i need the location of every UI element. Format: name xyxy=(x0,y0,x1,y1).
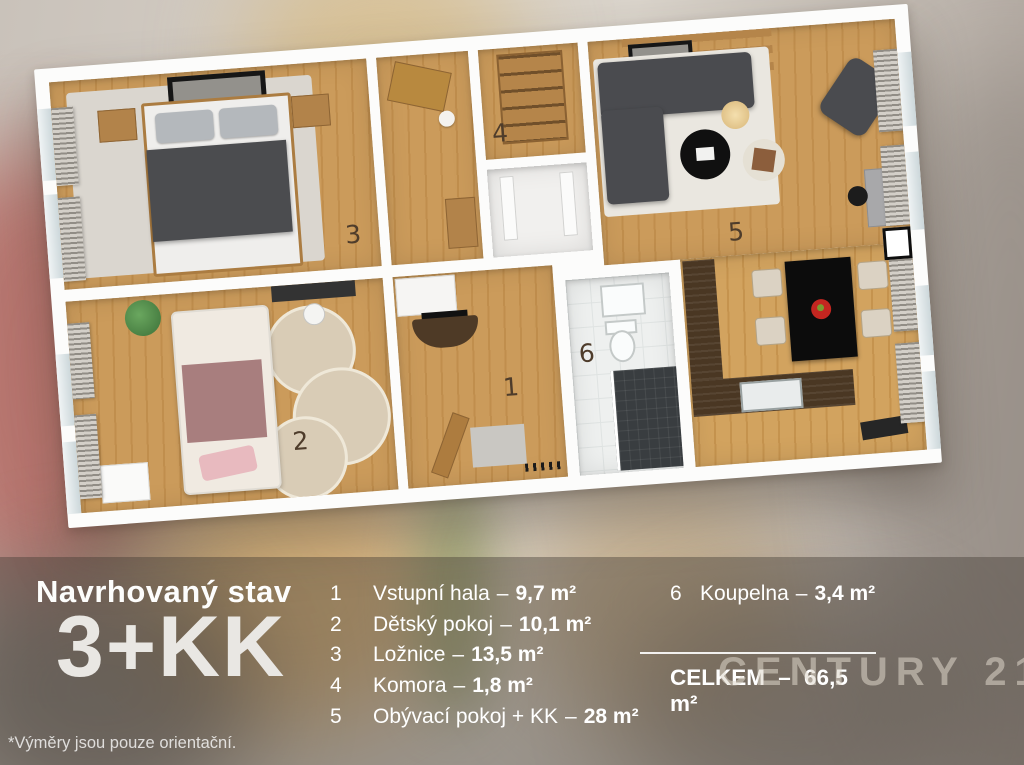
sofa-chaise xyxy=(601,106,670,204)
legend-row: 1 Vstupní hala – 9,7 m² xyxy=(330,579,639,610)
legend-name: Vstupní hala xyxy=(373,582,490,606)
kitchen-area xyxy=(680,242,927,467)
shower xyxy=(610,366,683,471)
window-blinds xyxy=(889,258,918,332)
dining-chair xyxy=(751,268,783,298)
legend-dash: – xyxy=(497,582,509,606)
pillow xyxy=(155,109,215,143)
room-label-4: 4 xyxy=(491,118,509,148)
bathroom-sink xyxy=(600,282,646,317)
century21-watermark-logo: CENTURY 21. xyxy=(718,650,1024,695)
blanket xyxy=(182,359,268,443)
room-loznice: 3 xyxy=(49,59,382,290)
room-label-2: 2 xyxy=(292,426,310,456)
corridor xyxy=(376,51,483,265)
entry-mat xyxy=(470,424,527,468)
legend-area: 3,4 m² xyxy=(814,582,875,606)
legend-dash: – xyxy=(500,613,512,637)
floor-plan-3d: 3 4 xyxy=(34,4,942,528)
legend-dash: – xyxy=(565,705,577,729)
unit-type-label: 3+KK xyxy=(56,604,286,690)
legend-area: 10,1 m² xyxy=(519,613,591,637)
pillow xyxy=(218,104,278,138)
dresser xyxy=(445,197,479,249)
room-label-1: 1 xyxy=(502,372,520,402)
desk-chair xyxy=(847,185,868,206)
wall-picture xyxy=(882,226,912,260)
legend-area: 9,7 m² xyxy=(515,582,576,606)
single-bed xyxy=(171,305,283,496)
legend-dash: – xyxy=(454,674,466,698)
entry-doormat xyxy=(387,61,452,112)
room-vstupni-hala: 1 xyxy=(393,265,568,488)
legend-num: 1 xyxy=(330,582,373,606)
dining-chair xyxy=(755,316,787,346)
legend-area: 28 m² xyxy=(584,705,639,729)
room-label-5: 5 xyxy=(727,217,745,247)
kitchen-sink xyxy=(739,378,803,413)
legend-num: 3 xyxy=(330,643,373,667)
disclaimer-footnote: *Výměry jsou pouze orientační. xyxy=(8,734,236,753)
legend-name: Koupelna xyxy=(700,582,789,606)
door xyxy=(499,176,518,241)
dining-chair xyxy=(857,260,889,290)
legend-row: 6 Koupelna – 3,4 m² xyxy=(640,579,880,610)
nightstand xyxy=(97,108,137,143)
pouf-tray xyxy=(751,148,776,173)
legend-num: 2 xyxy=(330,613,373,637)
door xyxy=(559,171,578,236)
room-koupelna: 6 xyxy=(565,272,683,475)
magazine xyxy=(696,147,715,161)
console-table xyxy=(412,315,480,350)
nightstand xyxy=(291,93,331,128)
legend-row: 3 Ložnice – 13,5 m² xyxy=(330,640,639,671)
pillow xyxy=(198,444,258,481)
legend-num: 4 xyxy=(330,674,373,698)
legend-row: 4 Komora – 1,8 m² xyxy=(330,671,639,702)
real-estate-floorplan-image: 3 4 xyxy=(0,0,1024,765)
room-komora: 4 xyxy=(478,43,586,160)
room-legend-left: 1 Vstupní hala – 9,7 m² 2 Dětský pokoj –… xyxy=(330,579,639,732)
legend-num: 5 xyxy=(330,705,373,729)
plant xyxy=(124,299,163,338)
legend-area: 13,5 m² xyxy=(471,643,543,667)
vestibule xyxy=(487,162,593,257)
room-label-6: 6 xyxy=(578,338,596,368)
legend-name: Komora xyxy=(373,674,447,698)
room-label-3: 3 xyxy=(344,219,362,249)
legend-name: Dětský pokoj xyxy=(373,613,493,637)
legend-row: 2 Dětský pokoj – 10,1 m² xyxy=(330,610,639,641)
coat-hooks xyxy=(525,461,563,472)
toilet xyxy=(608,329,636,363)
vase xyxy=(438,110,455,127)
legend-num: 6 xyxy=(670,582,700,606)
legend-dash: – xyxy=(796,582,808,606)
window-blinds xyxy=(67,322,95,399)
side-table xyxy=(100,462,151,503)
kids-desk xyxy=(271,280,356,302)
legend-area: 1,8 m² xyxy=(472,674,533,698)
room-detsky-pokoj: 2 xyxy=(65,278,398,513)
room-obyvaci-pokoj: 5 xyxy=(587,19,911,265)
legend-dash: – xyxy=(452,643,464,667)
legend-name: Obývací pokoj + KK xyxy=(373,705,558,729)
legend-name: Ložnice xyxy=(373,643,445,667)
double-bed xyxy=(141,92,304,277)
room-legend-right: 6 Koupelna – 3,4 m² CELKEM – 66,5 m² xyxy=(640,579,880,610)
dining-chair xyxy=(860,308,892,338)
legend-row: 5 Obývací pokoj + KK – 28 m² xyxy=(330,701,639,732)
legend-panel: Navrhovaný stav 3+KK *Výměry jsou pouze … xyxy=(0,558,1024,765)
blanket xyxy=(146,140,293,242)
open-door xyxy=(431,412,470,478)
